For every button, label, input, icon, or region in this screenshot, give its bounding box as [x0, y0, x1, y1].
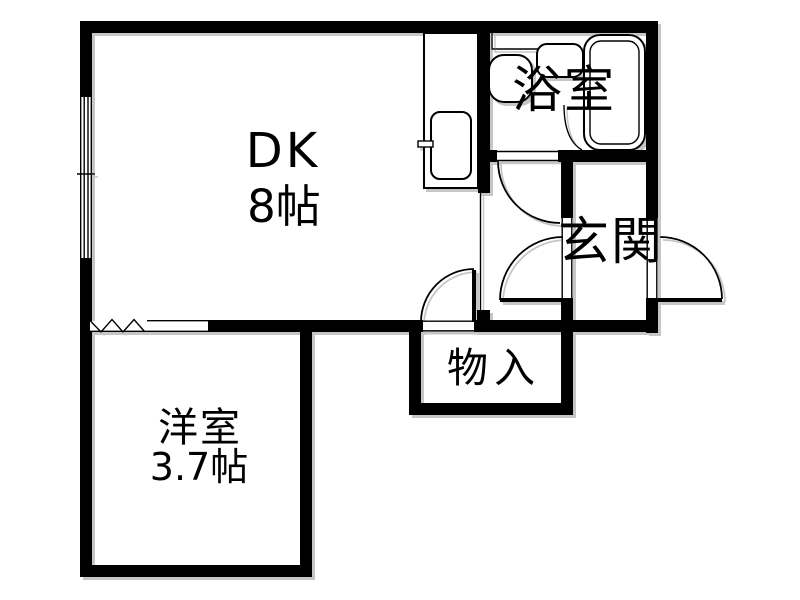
- storage-door-opening: [423, 321, 474, 331]
- wall-bath-bottom-left: [478, 150, 497, 162]
- wall-mid-band-left-end: [80, 320, 90, 332]
- label-western-room-size: 3.7帖: [150, 445, 248, 489]
- wall-left-lower: [80, 258, 92, 577]
- wall-entrance-left-lower: [561, 298, 573, 415]
- storage-door-swing-arc: [421, 269, 474, 322]
- wall-storage-left: [409, 320, 421, 415]
- label-bathroom: 浴室: [512, 61, 616, 119]
- wall-right-upper: [646, 21, 658, 218]
- label-entrance: 玄関: [558, 213, 664, 272]
- floor-plan: DK 8帖 浴室 玄関 物入 洋室 3.7帖: [0, 0, 800, 600]
- window-opening: [80, 97, 92, 258]
- wall-mid-band-center: [208, 320, 423, 332]
- wall-entrance-left-upper: [561, 150, 573, 218]
- kitchen-sink: [431, 112, 471, 179]
- wall-top: [80, 21, 658, 33]
- entrance-door-swing-arc: [500, 237, 563, 300]
- bath-door-opening: [497, 151, 558, 161]
- wall-western-room-bottom: [80, 565, 312, 577]
- label-dk-size: 8帖: [247, 180, 321, 233]
- kitchen-faucet: [418, 141, 433, 147]
- wall-left-upper: [80, 21, 92, 97]
- western-room-opening: [90, 321, 208, 331]
- wall-storage-bottom: [409, 403, 573, 415]
- wall-western-room-right: [300, 320, 312, 577]
- floor-plan-drawing: DK 8帖 浴室 玄関 物入 洋室 3.7帖: [0, 0, 800, 600]
- wall-kitchen-bath-divider: [478, 21, 490, 193]
- label-dk: DK: [246, 123, 320, 179]
- front-door-swing-arc: [660, 237, 722, 299]
- label-storage: 物入: [447, 344, 541, 392]
- bath-ledge: [492, 33, 538, 49]
- bath-door-swing-arc: [498, 161, 560, 223]
- wall-hall-door-jamb: [477, 310, 490, 321]
